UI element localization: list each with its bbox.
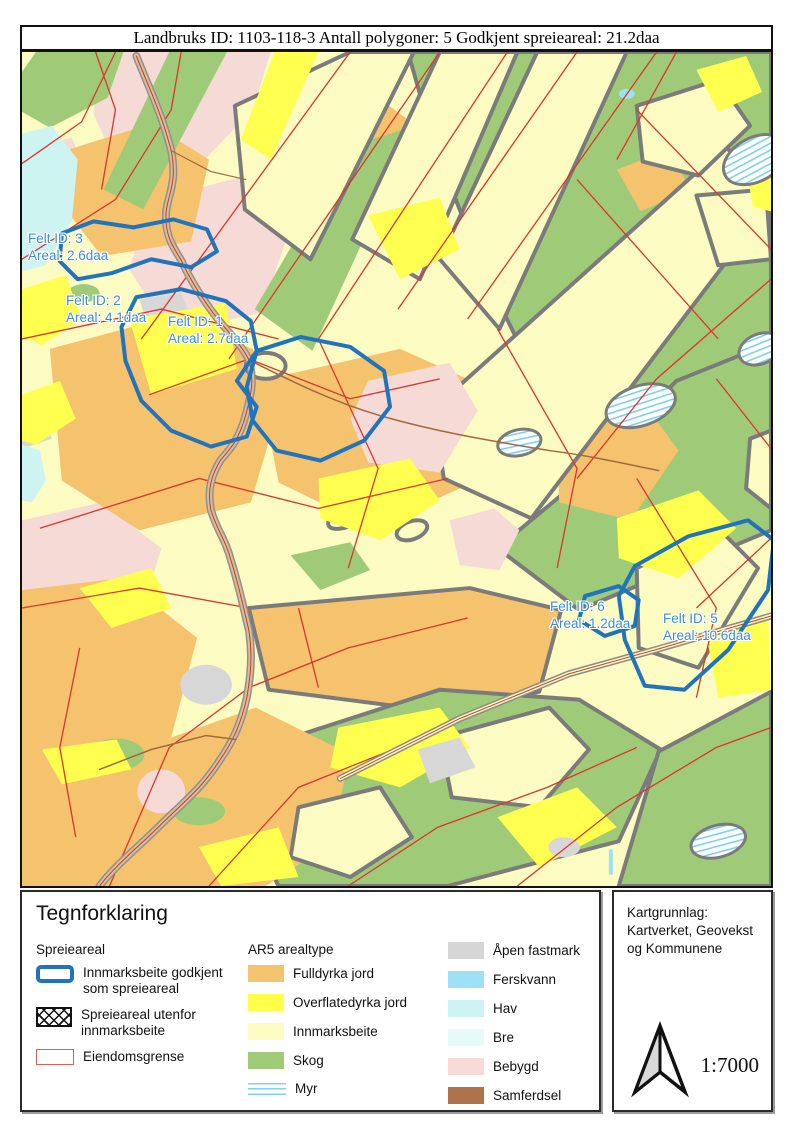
north-arrow-icon <box>630 1020 690 1100</box>
legend-item-label: Samferdsel <box>493 1088 561 1104</box>
field-label-felt-1: Felt ID: 1 Areal: 2.7daa <box>168 313 248 347</box>
legend-item-innmarksbeite-godkjent: Innmarksbeite godkjent som spreieareal <box>36 965 248 997</box>
legend-item-label: Spreieareal utenfor innmarksbeite <box>81 1007 231 1039</box>
felt-id-text: Felt ID: 3 <box>28 230 108 247</box>
map-source-text: Kartgrunnlag: Kartverket, Geovekst og Ko… <box>614 892 771 958</box>
legend-column-ar5: AR5 arealtype Fulldyrka jord Overflatedy… <box>248 942 448 1116</box>
hav-swatch <box>448 1000 484 1017</box>
fulldyrka-swatch <box>248 965 284 982</box>
areal-text: Areal: 1.2daa <box>550 615 630 632</box>
legend-item-label: Innmarksbeite godkjent som spreieareal <box>83 965 233 997</box>
legend-item-spreieareal-utenfor: Spreieareal utenfor innmarksbeite <box>36 1007 248 1039</box>
overflatedyrka-swatch <box>248 994 284 1011</box>
title-bar: Landbruks ID: 1103-118-3 Antall polygone… <box>20 25 773 51</box>
felt-id-text: Felt ID: 2 <box>66 292 146 309</box>
map-sheet: Landbruks ID: 1103-118-3 Antall polygone… <box>0 0 793 1122</box>
legend-item-bre: Bre <box>448 1029 598 1046</box>
felt-id-text: Felt ID: 5 <box>663 610 751 627</box>
legend-item-ferskvann: Ferskvann <box>448 971 598 988</box>
ar5-heading: AR5 arealtype <box>248 942 448 957</box>
legend-item-bebygd: Bebygd <box>448 1058 598 1075</box>
title-text: Landbruks ID: 1103-118-3 Antall polygone… <box>133 28 659 47</box>
legend-item-label: Hav <box>493 1001 517 1017</box>
map-area: Felt ID: 3 Areal: 2.6daa Felt ID: 2 Area… <box>20 50 773 888</box>
legend-item-label: Innmarksbeite <box>293 1024 378 1040</box>
felt-id-text: Felt ID: 1 <box>168 313 248 330</box>
legend-item-label: Overflatedyrka jord <box>293 995 407 1011</box>
legend-box: Tegnforklaring Spreieareal Innmarksbeite… <box>20 890 601 1112</box>
legend-item-label: Ferskvann <box>493 972 556 988</box>
field-label-felt-2: Felt ID: 2 Areal: 4.1daa <box>66 292 146 326</box>
field-label-felt-3: Felt ID: 3 Areal: 2.6daa <box>28 230 108 264</box>
map-canvas <box>22 52 771 886</box>
legend-item-label: Myr <box>295 1081 318 1097</box>
felt-id-text: Felt ID: 6 <box>550 598 630 615</box>
field-label-felt-6: Felt ID: 6 Areal: 1.2daa <box>550 598 630 632</box>
areal-text: Areal: 4.1daa <box>66 309 146 326</box>
legend-column-ar5-right: Åpen fastmark Ferskvann Hav Bre Bebygd <box>448 942 598 1116</box>
legend-columns: Spreieareal Innmarksbeite godkjent som s… <box>22 926 599 1116</box>
areal-text: Areal: 10.6daa <box>663 627 751 644</box>
spreieareal-heading: Spreieareal <box>36 942 248 957</box>
info-box: Kartgrunnlag: Kartverket, Geovekst og Ko… <box>612 890 773 1112</box>
skog-swatch <box>248 1052 284 1069</box>
legend-item-hav: Hav <box>448 1000 598 1017</box>
field-label-felt-5: Felt ID: 5 Areal: 10.6daa <box>663 610 751 644</box>
legend-item-overflatedyrka: Overflatedyrka jord <box>248 994 448 1011</box>
legend-item-label: Skog <box>293 1053 324 1069</box>
legend-item-label: Bre <box>493 1030 514 1046</box>
legend-column-spreieareal: Spreieareal Innmarksbeite godkjent som s… <box>36 942 248 1116</box>
samferdsel-swatch <box>448 1087 484 1104</box>
legend-item-skog: Skog <box>248 1052 448 1069</box>
areal-text: Areal: 2.6daa <box>28 247 108 264</box>
apen-fastmark-swatch <box>448 942 484 959</box>
innmarksbeite-swatch <box>248 1023 284 1040</box>
source-line: Kartverket, Geovekst <box>627 922 761 940</box>
legend-item-samferdsel: Samferdsel <box>448 1087 598 1104</box>
legend-item-fulldyrka: Fulldyrka jord <box>248 965 448 982</box>
ferskvann-swatch <box>448 971 484 988</box>
legend-title: Tegnforklaring <box>22 892 599 926</box>
bebygd-swatch <box>448 1058 484 1075</box>
myr-swatch <box>248 1083 286 1095</box>
legend-item-label: Eiendomsgrense <box>83 1049 184 1065</box>
legend-item-innmarksbeite: Innmarksbeite <box>248 1023 448 1040</box>
source-line: og Kommunene <box>627 940 761 958</box>
crosshatch-swatch <box>36 1007 72 1027</box>
legend-item-label: Åpen fastmark <box>493 943 580 959</box>
bre-swatch <box>448 1029 484 1046</box>
blue-outline-swatch <box>36 965 74 983</box>
legend-item-eiendomsgrense: Eiendomsgrense <box>36 1049 248 1065</box>
areal-text: Areal: 2.7daa <box>168 330 248 347</box>
source-line: Kartgrunnlag: <box>627 904 761 922</box>
red-outline-swatch <box>36 1049 74 1065</box>
scale-text: 1:7000 <box>701 1053 759 1078</box>
legend-item-apen-fastmark: Åpen fastmark <box>448 942 598 959</box>
legend-item-label: Bebygd <box>493 1059 539 1075</box>
legend-item-label: Fulldyrka jord <box>293 966 374 982</box>
legend-item-myr: Myr <box>248 1081 448 1097</box>
